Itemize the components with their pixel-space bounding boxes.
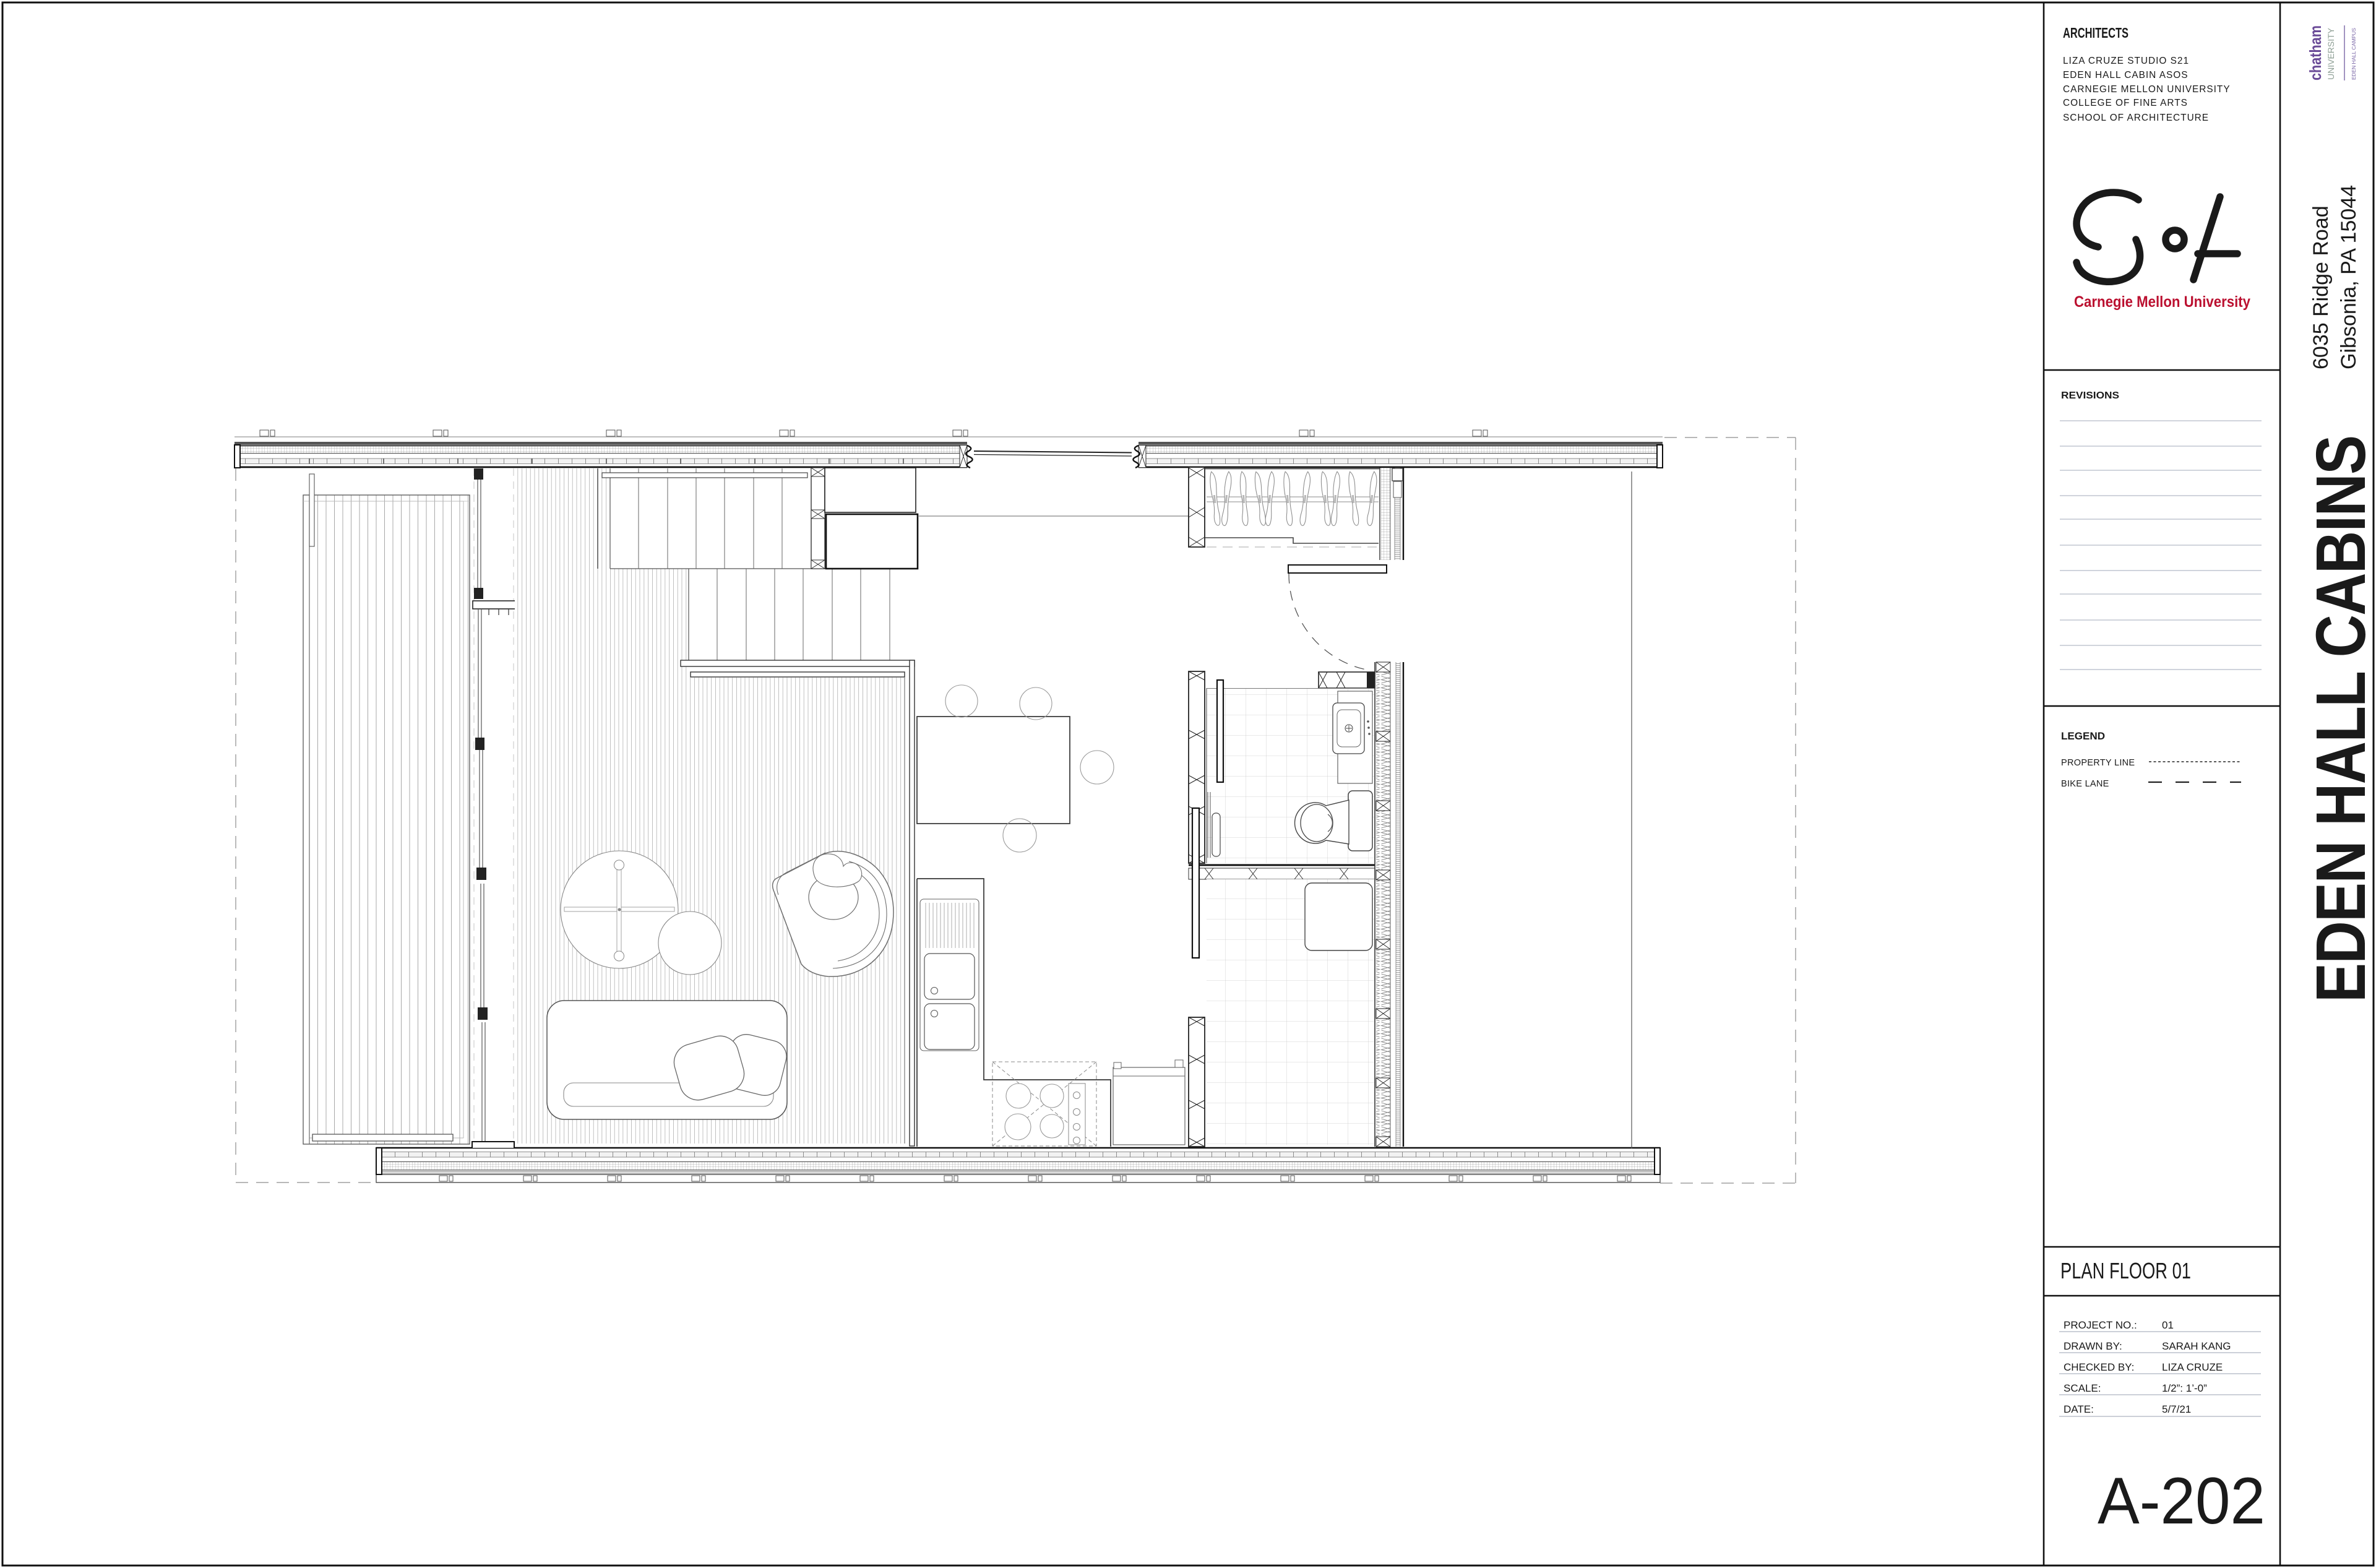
svg-text:REVISIONS: REVISIONS xyxy=(2061,390,2119,401)
svg-text:LIZA CRUZE STUDIO S21: LIZA CRUZE STUDIO S21 xyxy=(2063,56,2189,66)
svg-text:SARAH KANG: SARAH KANG xyxy=(2162,1340,2231,1352)
svg-text:BIKE LANE: BIKE LANE xyxy=(2061,779,2109,789)
svg-text:ARCHITECTS: ARCHITECTS xyxy=(2063,25,2128,41)
svg-text:PLAN FLOOR 01: PLAN FLOOR 01 xyxy=(2060,1258,2191,1283)
svg-text:PROPERTY LINE: PROPERTY LINE xyxy=(2061,758,2135,768)
svg-text:LIZA CRUZE: LIZA CRUZE xyxy=(2162,1361,2223,1373)
svg-text:EDEN HALL CABINS: EDEN HALL CABINS xyxy=(2302,436,2376,1002)
svg-text:1/2”: 1’-0”: 1/2”: 1’-0” xyxy=(2162,1382,2207,1394)
svg-text:UNIVERSITY: UNIVERSITY xyxy=(2326,28,2336,80)
svg-text:COLLEGE OF FINE ARTS: COLLEGE OF FINE ARTS xyxy=(2063,98,2188,108)
svg-text:CARNEGIE MELLON UNIVERSITY: CARNEGIE MELLON UNIVERSITY xyxy=(2063,84,2231,95)
svg-text:5/7/21: 5/7/21 xyxy=(2162,1403,2191,1415)
svg-text:DRAWN BY:: DRAWN BY: xyxy=(2064,1340,2122,1352)
svg-text:Gibsonia, PA 15044: Gibsonia, PA 15044 xyxy=(2337,185,2361,369)
svg-text:chatham: chatham xyxy=(2306,25,2325,80)
svg-text:CHECKED BY:: CHECKED BY: xyxy=(2064,1361,2134,1373)
svg-text:DATE:: DATE: xyxy=(2064,1403,2094,1415)
svg-text:A-202: A-202 xyxy=(2098,1463,2265,1538)
svg-text:EDEN HALL CAMPUS: EDEN HALL CAMPUS xyxy=(2351,28,2357,80)
svg-text:6035 Ridge Road: 6035 Ridge Road xyxy=(2309,205,2333,369)
svg-text:PROJECT NO.:: PROJECT NO.: xyxy=(2064,1319,2137,1331)
svg-text:SCHOOL OF ARCHITECTURE: SCHOOL OF ARCHITECTURE xyxy=(2063,113,2209,123)
svg-text:Carnegie Mellon University: Carnegie Mellon University xyxy=(2074,293,2250,311)
svg-text:01: 01 xyxy=(2162,1319,2174,1331)
svg-text:SCALE:: SCALE: xyxy=(2064,1382,2101,1394)
svg-text:LEGEND: LEGEND xyxy=(2061,730,2105,742)
svg-text:EDEN HALL CABIN ASOS: EDEN HALL CABIN ASOS xyxy=(2063,70,2188,80)
